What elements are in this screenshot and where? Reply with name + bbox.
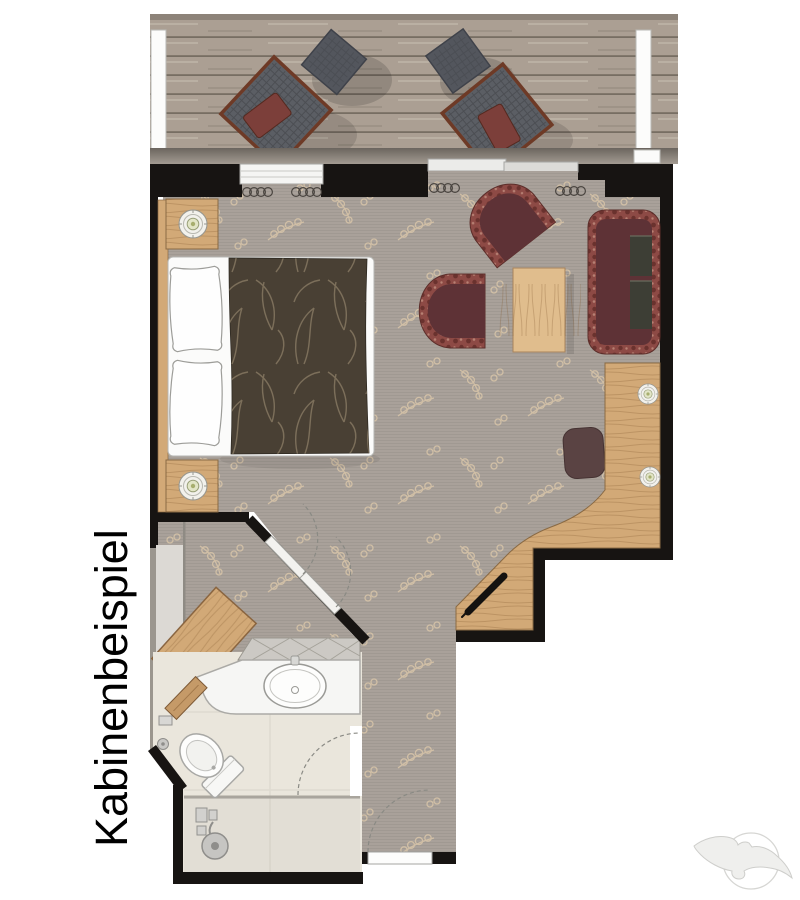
sofa-cushion [630,236,652,276]
seagull-icon [694,836,792,879]
sofa-cushion [630,281,652,329]
pillow [169,360,224,446]
nightstand-lamp-icon [179,210,207,238]
pillow [169,266,224,352]
faucet-icon [291,656,299,665]
sofa [588,210,660,354]
railing-right [636,30,651,153]
balcony-wall-shadow [150,148,678,164]
step-wall-horizontal [533,548,673,560]
bathroom-west-wall [173,785,183,884]
floor-plan-page: Kabinenbeispiel [0,0,800,900]
balcony [150,14,678,174]
seagull-logo [694,833,792,889]
window [240,164,323,184]
door-track-end [634,150,660,163]
wall-control-dot [161,742,165,746]
nightstand-lamp-icon [179,472,207,500]
bathroom-door-opening [350,726,362,796]
plan-caption: Kabinenbeispiel [86,529,138,847]
duvet [229,258,369,454]
tub-chair [419,274,485,348]
paper-holder-icon [159,716,172,725]
bathroom [153,638,362,872]
desk-lamp-icon [638,384,658,404]
balcony-sliding-door-panel [428,159,506,171]
entry-door [368,852,432,864]
west-wall [150,164,158,548]
bathroom-south-wall [173,872,363,884]
deck-top-edge [150,14,678,20]
balcony-sliding-door-panel [504,162,578,172]
desk-lamp-icon [640,467,660,487]
console-wall [444,630,545,642]
east-wall [660,164,673,558]
step-wall-vertical [533,548,545,642]
railing-left [151,30,166,153]
stool [562,427,605,480]
balcony-deck [150,14,678,163]
closet-wall-stub [150,512,249,522]
